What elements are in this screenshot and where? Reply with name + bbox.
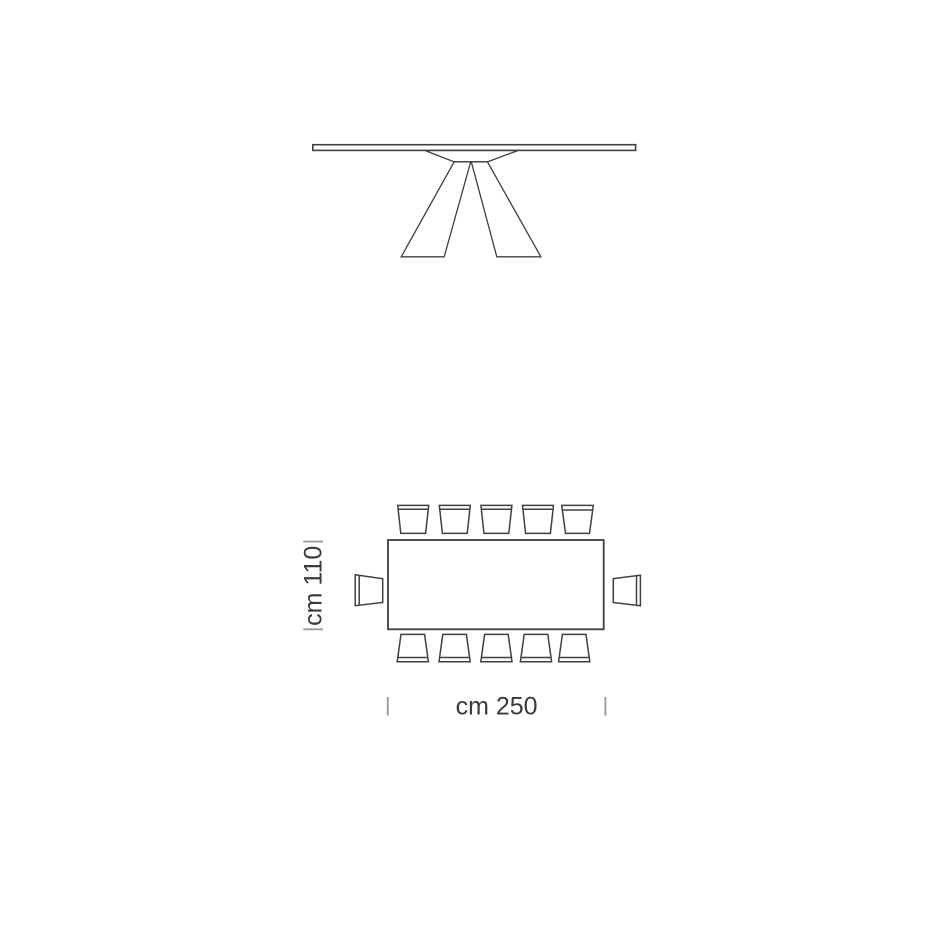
- svg-text:cm 110: cm 110: [299, 546, 327, 626]
- svg-text:cm 250: cm 250: [456, 693, 538, 721]
